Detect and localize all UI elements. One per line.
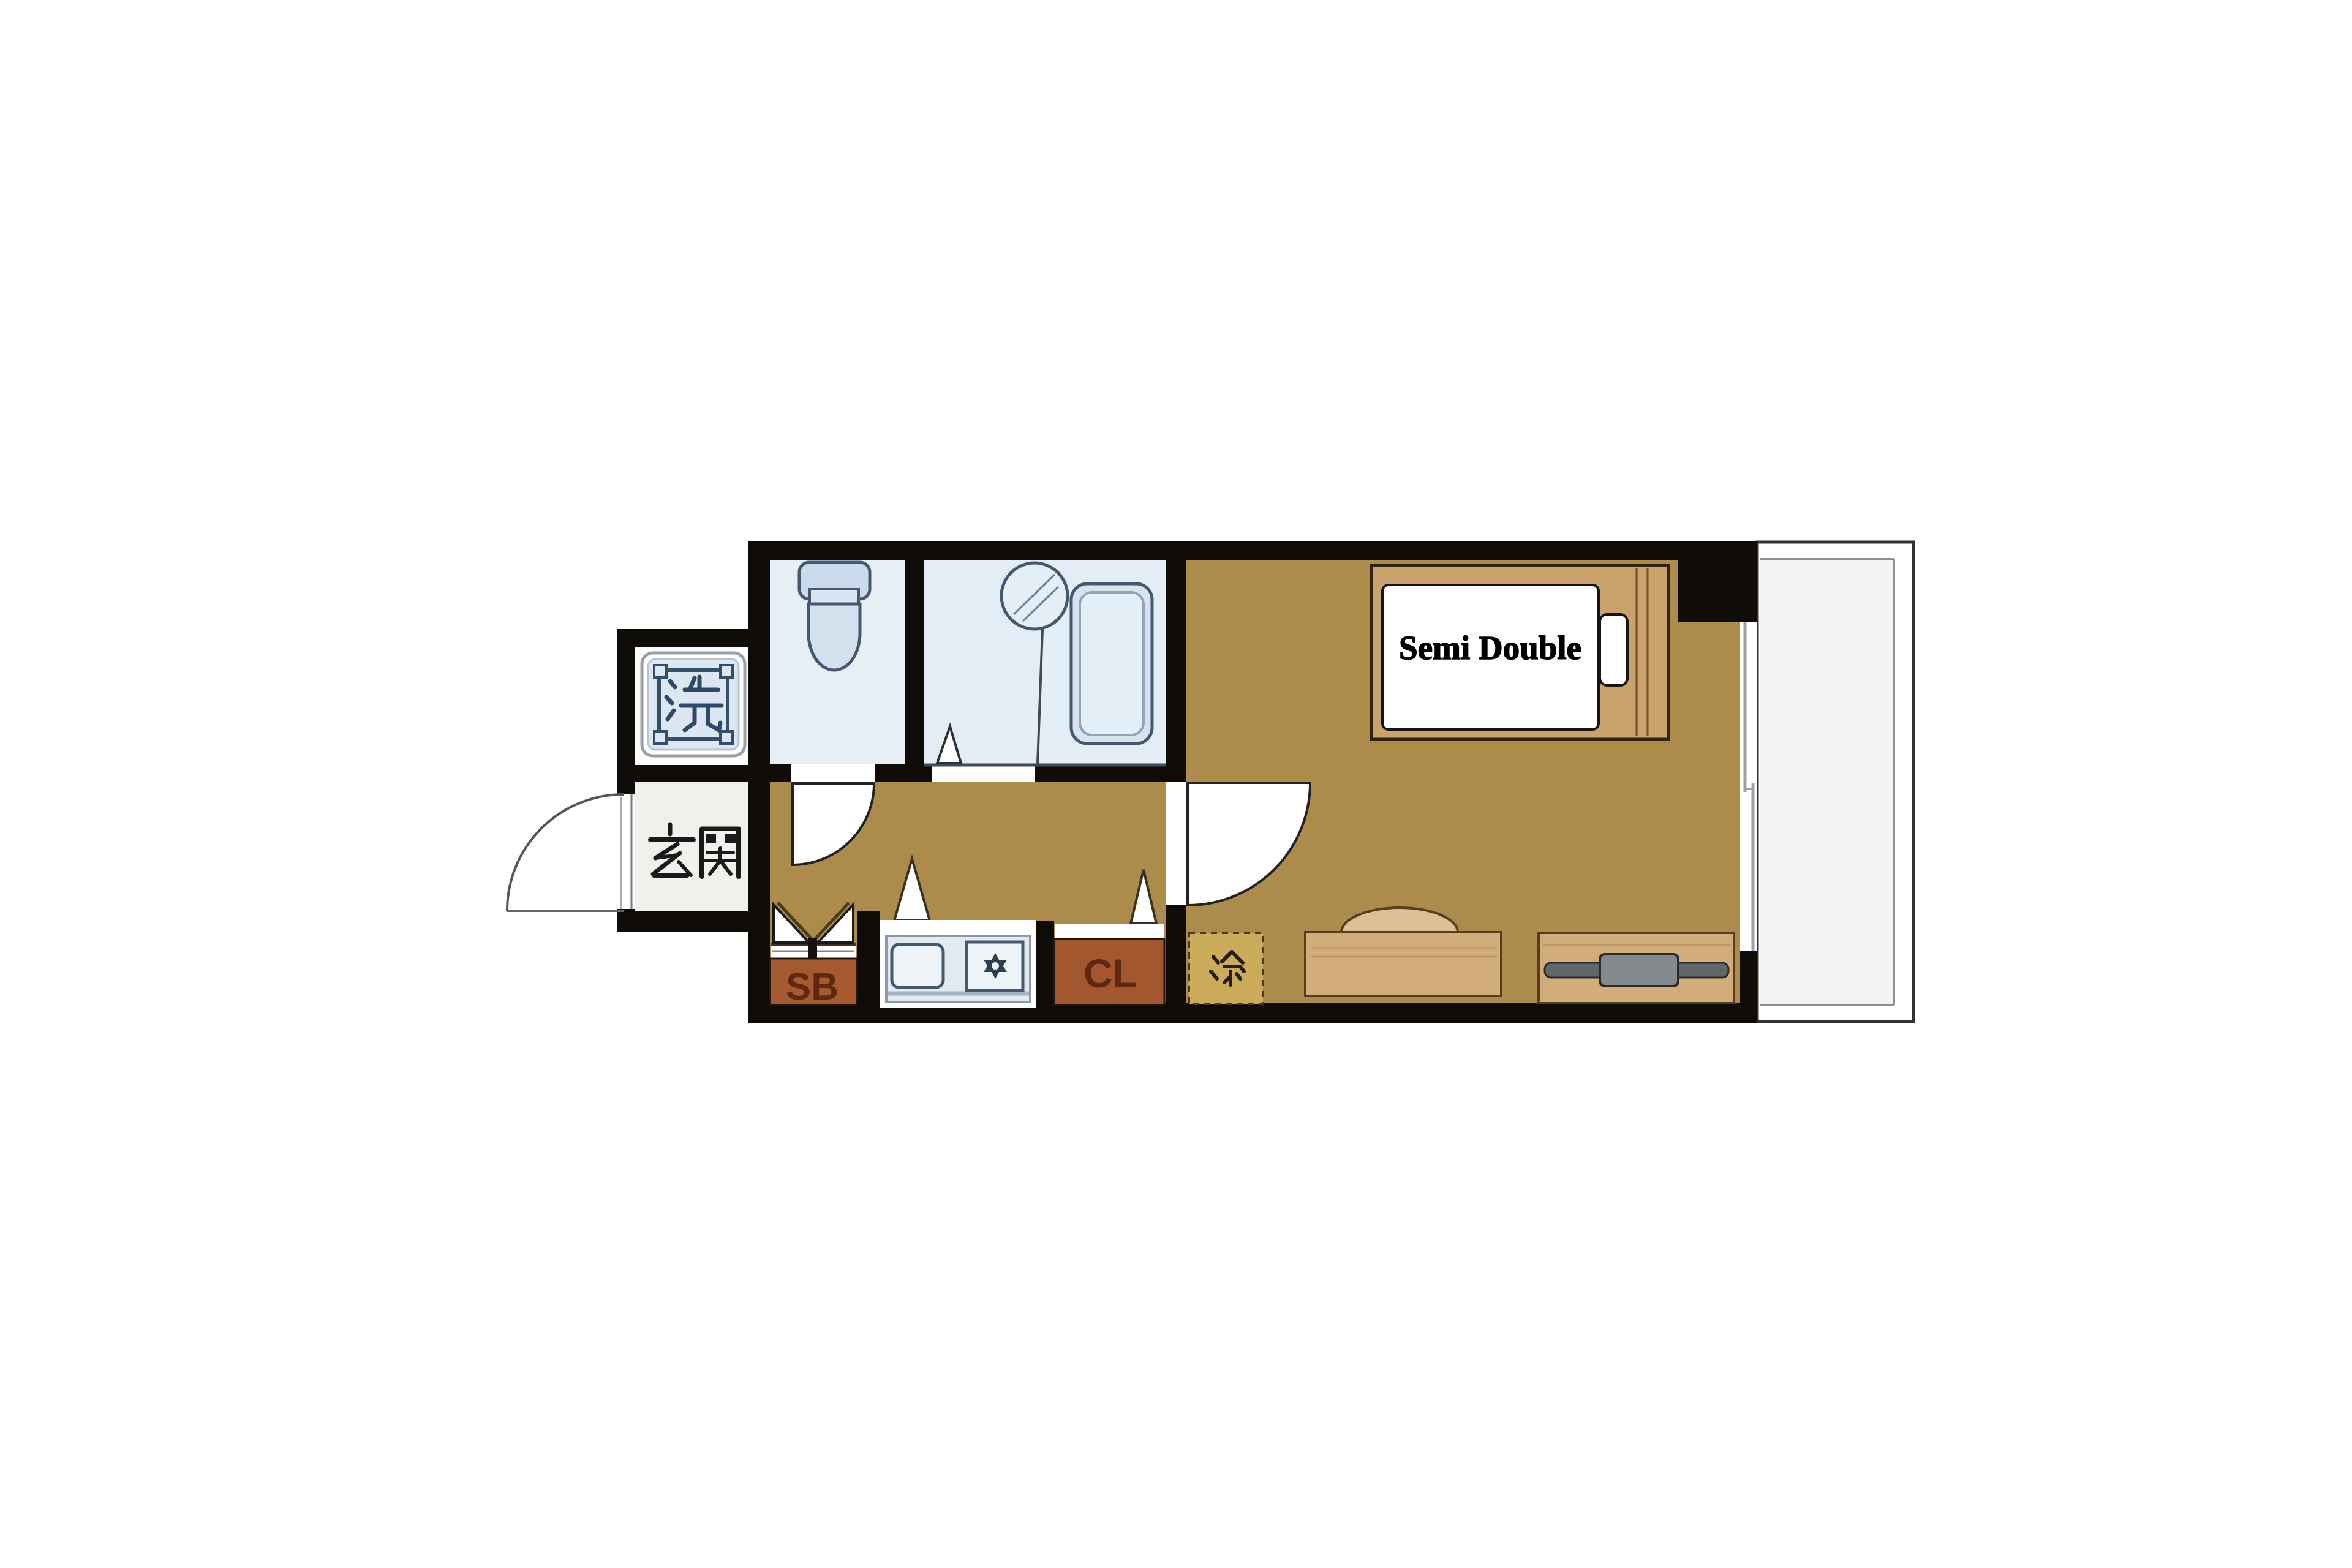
svg-text:Semi Double: Semi Double — [1399, 629, 1581, 666]
svg-text:CL: CL — [1084, 951, 1137, 996]
svg-text:SB: SB — [786, 966, 839, 1008]
